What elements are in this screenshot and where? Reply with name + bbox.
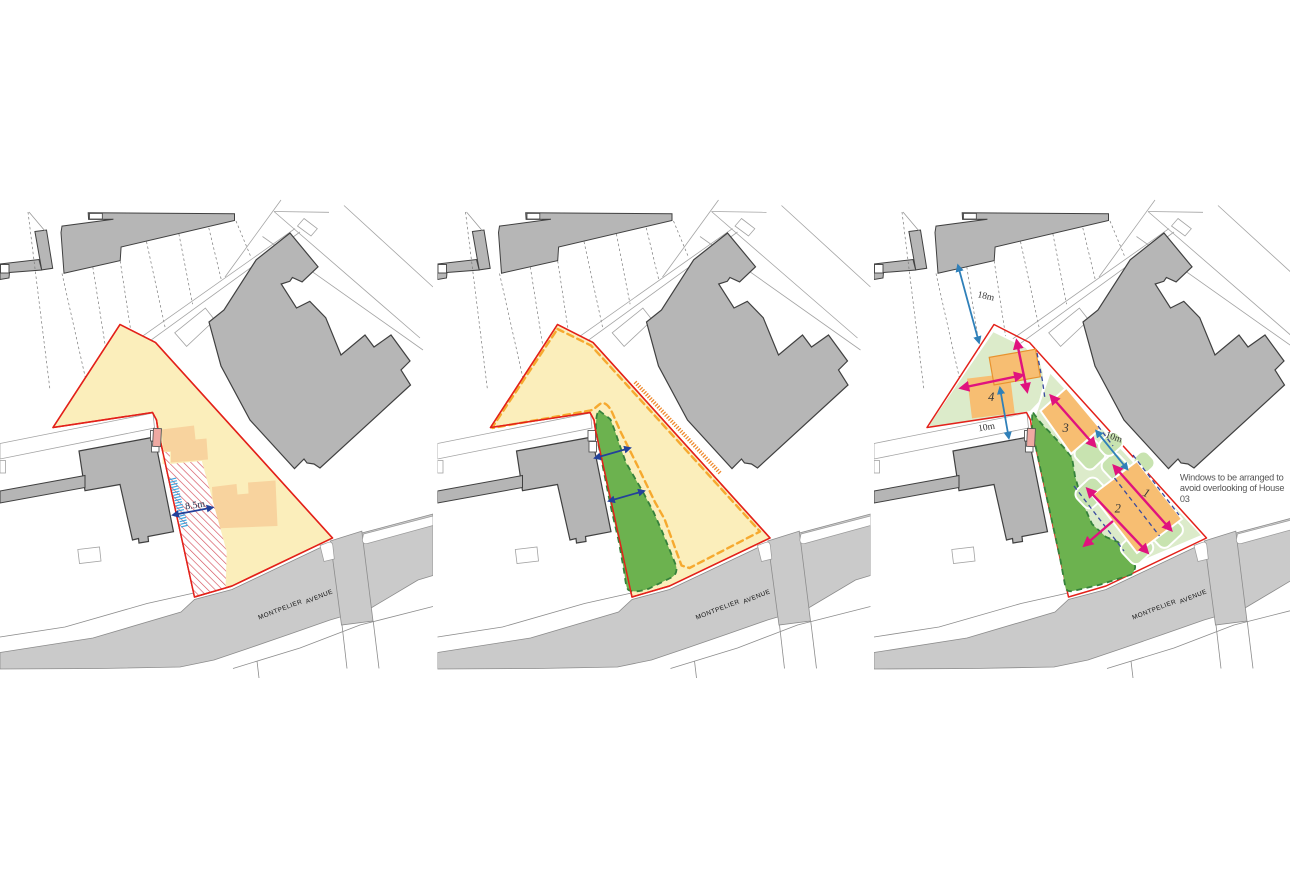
svg-text:Windows to be arranged to: Windows to be arranged to bbox=[1180, 473, 1284, 483]
svg-text:3: 3 bbox=[1061, 421, 1068, 435]
svg-text:avoid overlooking of House: avoid overlooking of House bbox=[1180, 483, 1284, 493]
svg-text:4: 4 bbox=[988, 390, 994, 404]
svg-text:03: 03 bbox=[1180, 494, 1190, 504]
svg-text:2: 2 bbox=[1115, 502, 1121, 516]
